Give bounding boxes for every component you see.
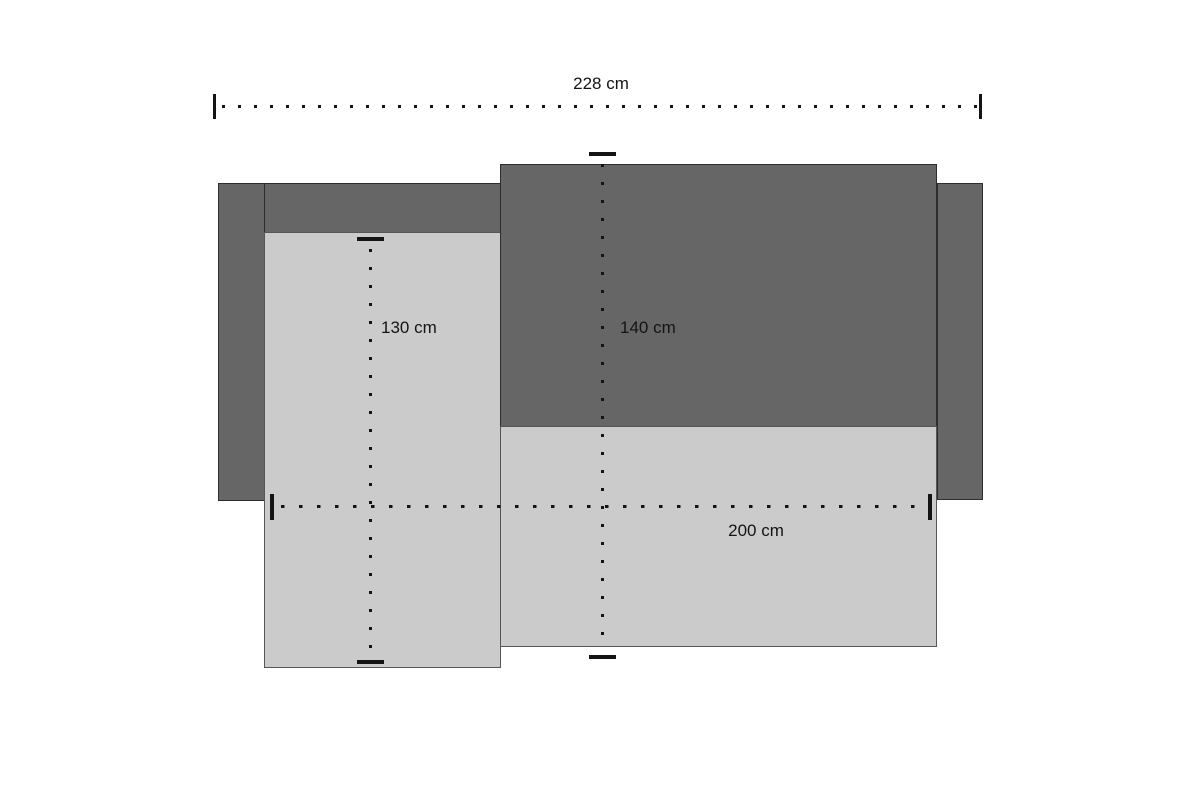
dim-end-tick	[270, 494, 274, 520]
dim-end-tick	[357, 660, 384, 664]
dim-label-chaise-length: 130 cm	[381, 317, 437, 339]
dim-end-tick	[928, 494, 932, 520]
sofa-dimension-diagram: 228 cm 130 cm 140 cm 200 cm	[0, 0, 1200, 794]
dim-label-depth: 140 cm	[620, 317, 676, 339]
chaise-cushion	[264, 232, 501, 668]
dim-end-tick	[213, 94, 216, 119]
dim-dotted-line	[369, 249, 372, 655]
dim-end-tick	[357, 237, 384, 241]
left-armrest	[218, 183, 265, 501]
dim-label-total-width: 228 cm	[541, 73, 661, 95]
dim-dotted-line	[281, 505, 926, 508]
back-strip-left	[264, 183, 501, 233]
dim-dotted-line	[222, 105, 978, 108]
dim-dotted-line	[601, 164, 604, 650]
backrest-block	[500, 164, 937, 427]
dim-label-seat-width: 200 cm	[696, 520, 816, 542]
dim-end-tick	[589, 152, 616, 156]
right-armrest	[937, 183, 983, 500]
dim-end-tick	[979, 94, 982, 119]
dim-end-tick	[589, 655, 616, 659]
